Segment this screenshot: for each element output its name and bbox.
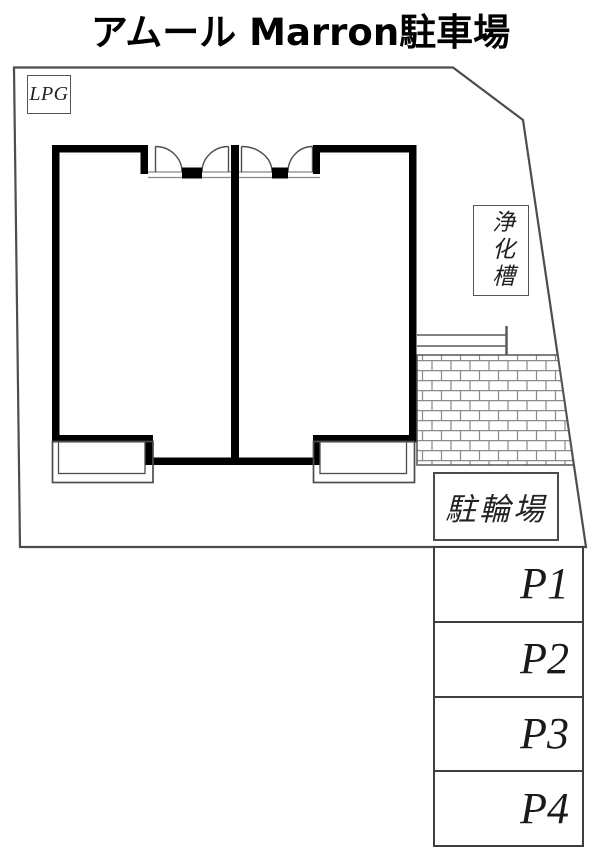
lpg-box: LPG xyxy=(27,75,71,114)
bicycle-parking-label: 駐輪場 xyxy=(445,484,547,529)
lpg-label: LPG xyxy=(29,83,68,106)
parking-space-row: P2 xyxy=(435,621,582,696)
brick-paved-area xyxy=(417,355,574,465)
septic-tank-box: 浄化槽 xyxy=(473,205,529,296)
parking-space-label: P4 xyxy=(520,787,569,831)
parking-space-list: P1 P2 P3 P4 xyxy=(433,546,584,847)
building-walls xyxy=(52,145,417,465)
site-plan: アムール Marron駐車場 xyxy=(0,0,601,859)
fence-lines xyxy=(417,326,507,356)
parking-space-label: P2 xyxy=(520,637,569,681)
parking-space-label: P1 xyxy=(520,562,569,606)
parking-space-row: P4 xyxy=(435,770,582,845)
parking-space-row: P1 xyxy=(435,548,582,621)
bicycle-parking-box: 駐輪場 xyxy=(433,472,559,541)
septic-tank-label: 浄化槽 xyxy=(487,210,514,291)
parking-space-label: P3 xyxy=(520,712,569,756)
parking-space-row: P3 xyxy=(435,696,582,771)
